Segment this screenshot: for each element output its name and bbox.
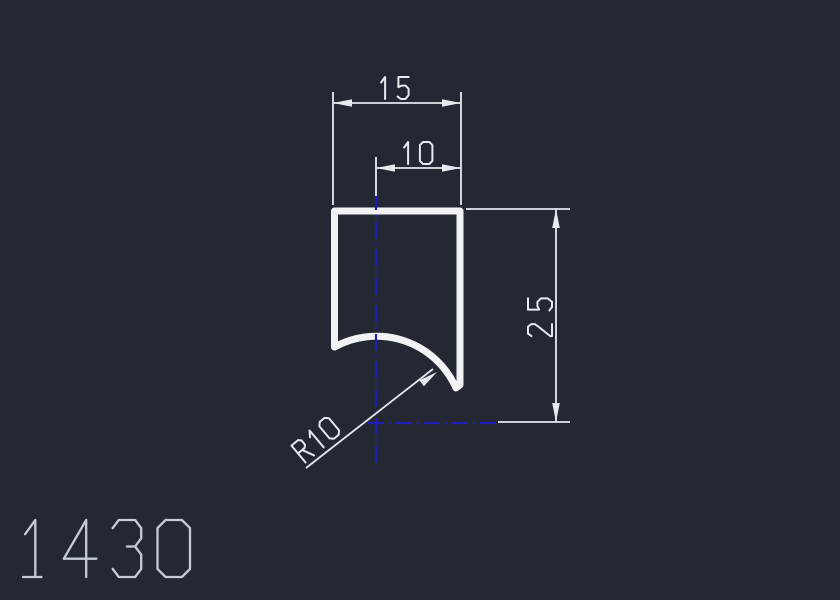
radius-label-r10 (291, 416, 341, 463)
dim-label-15 (381, 77, 409, 99)
centerlines (368, 194, 498, 468)
leader-arrowhead-icon (419, 372, 437, 386)
profile-outline (335, 211, 461, 388)
part-number (23, 520, 190, 577)
dimension-width-10 (376, 142, 461, 196)
profile-path (335, 211, 461, 388)
glyph-strokes (381, 77, 409, 99)
dimension-height-25 (466, 209, 570, 422)
arrowhead-left-icon (376, 164, 395, 172)
arrowhead-right-icon (442, 99, 461, 107)
glyph-strokes (404, 142, 432, 164)
glyph-strokes (23, 520, 190, 577)
glyph-strokes (528, 298, 552, 336)
dim-label-25 (528, 298, 552, 336)
radius-leader-r10 (291, 369, 437, 468)
cad-canvas (0, 0, 840, 600)
glyph-strokes (291, 416, 341, 463)
dim-label-10 (404, 142, 432, 164)
dimension-width-15 (333, 77, 461, 205)
arrowhead-top-icon (552, 209, 560, 228)
arrowhead-bottom-icon (552, 403, 560, 422)
cad-drawing (0, 0, 840, 600)
arrowhead-left-icon (333, 99, 352, 107)
arrowhead-right-icon (442, 164, 461, 172)
